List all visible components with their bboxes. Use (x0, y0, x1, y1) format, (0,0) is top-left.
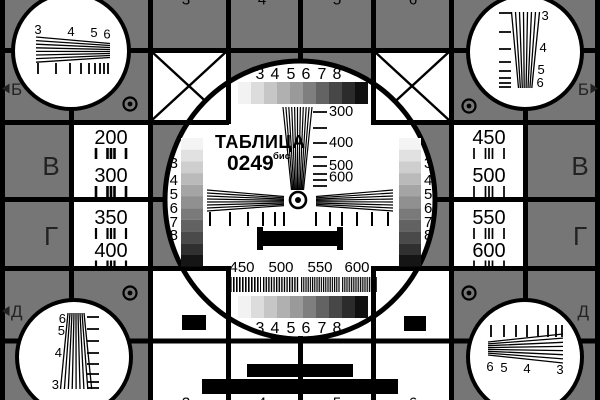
scale-digit: 7 (318, 66, 327, 83)
burst-label: 450 (229, 259, 254, 276)
corner-digit: 5 (90, 25, 97, 40)
panel-number: 600 (472, 240, 505, 262)
target-dot (467, 104, 472, 109)
corner-digit: 3 (556, 362, 563, 377)
burst-label: 500 (268, 259, 293, 276)
step-digit: 3 (170, 155, 178, 172)
scale-digit: 8 (333, 320, 342, 337)
corner-digit: 4 (540, 40, 547, 55)
freq-label: 400 (329, 135, 353, 151)
freq-label: 300 (329, 104, 353, 120)
row-letter-left: Г (44, 221, 58, 251)
scale-digit: 5 (287, 320, 296, 337)
corner-digit: 3 (52, 377, 59, 392)
corner-digit: 6 (486, 359, 493, 374)
bottom-edge-digit: 3 (182, 395, 190, 400)
corner-circle (468, 0, 582, 109)
card-number-suffix: бис (273, 151, 290, 162)
scale-digit: 6 (302, 320, 311, 337)
panel-number: 300 (94, 165, 127, 187)
corner-circle-top-right: 3 4 5 6 (468, 0, 582, 109)
scale-digit: 4 (271, 66, 280, 83)
scale-digit: 3 (256, 66, 265, 83)
target-dot (467, 291, 472, 296)
corner-digit: 3 (542, 8, 549, 23)
corner-digit: 3 (34, 22, 41, 37)
top-edge-digit: 6 (409, 0, 417, 9)
step-digit: 8 (170, 227, 178, 244)
black-square-right (404, 316, 426, 331)
scale-digit: 6 (302, 66, 311, 83)
top-edge-digit: 4 (258, 0, 266, 9)
multiburst-strip (227, 277, 377, 292)
row-letter-right: Г (573, 221, 587, 251)
row-letter-right: В (571, 151, 588, 181)
row-letter-left: В (42, 151, 59, 181)
grayscale-left-labels: 3 4 5 6 7 8 (170, 155, 178, 244)
test-card-svg: 3 4 5 6 7 8 300 400 500 600 ТАБЛИЦА 0249… (0, 0, 600, 400)
bottom-edge-digit: 4 (258, 395, 266, 400)
bottom-edge-digit: 6 (409, 395, 417, 400)
card-title: ТАБЛИЦА (215, 132, 306, 152)
scale-digit: 5 (287, 66, 296, 83)
panel-number: 500 (472, 165, 505, 187)
bottom-bar-upper (247, 364, 353, 377)
corner-digit: 6 (103, 27, 110, 42)
freq-label: 600 (329, 170, 353, 186)
burst-label: 600 (344, 259, 369, 276)
corner-circle-bottom-left: 6 5 4 3 (17, 300, 131, 400)
panel-number: 550 (472, 207, 505, 229)
grayscale-right-labels: 3 4 5 6 7 8 (424, 155, 432, 244)
row-letter-left: Д (11, 302, 23, 321)
grayscale-left-column (181, 138, 203, 267)
panel-number: 400 (94, 240, 127, 262)
corner-digit: 4 (55, 345, 62, 360)
bottom-edge-digit: 5 (333, 395, 341, 400)
tv-test-card: 3 4 5 6 7 8 300 400 500 600 ТАБЛИЦА 0249… (0, 0, 600, 400)
top-edge-digit: 3 (182, 0, 190, 9)
corner-digit: 4 (67, 24, 74, 39)
target-dot (128, 291, 133, 296)
scale-digit: 7 (318, 320, 327, 337)
panel-number: 200 (94, 127, 127, 149)
corner-digit: 6 (537, 75, 544, 90)
panel-number: 450 (472, 127, 505, 149)
grayscale-right-column (399, 138, 421, 267)
grayscale-bottom (238, 296, 368, 318)
burst-label: 550 (307, 259, 332, 276)
center-target-dot (295, 197, 301, 203)
step-digit: 3 (424, 155, 432, 172)
row-letter-right: Д (577, 302, 589, 321)
corner-digit: 5 (500, 360, 507, 375)
corner-circle-top-left: 3 4 5 6 (13, 0, 129, 109)
corner-digit: 5 (58, 323, 65, 338)
wedge-frequency-labels: 300 400 500 600 (329, 104, 353, 186)
row-letter-left: Б (11, 80, 22, 99)
top-edge-digit: 5 (333, 0, 341, 9)
corner-circle-bottom-right: 6 5 4 3 (468, 300, 582, 400)
scale-digit: 3 (256, 320, 265, 337)
scale-digit: 4 (271, 320, 280, 337)
corner-digit: 4 (523, 361, 530, 376)
black-square-left (182, 315, 206, 330)
scale-digit: 8 (333, 66, 342, 83)
bottom-bar-lower (202, 379, 398, 394)
card-number: 0249 (227, 152, 274, 175)
panel-number: 350 (94, 207, 127, 229)
step-digit: 8 (424, 227, 432, 244)
target-dot (128, 102, 133, 107)
grayscale-top (238, 82, 368, 104)
row-letter-right: Б (578, 80, 589, 99)
